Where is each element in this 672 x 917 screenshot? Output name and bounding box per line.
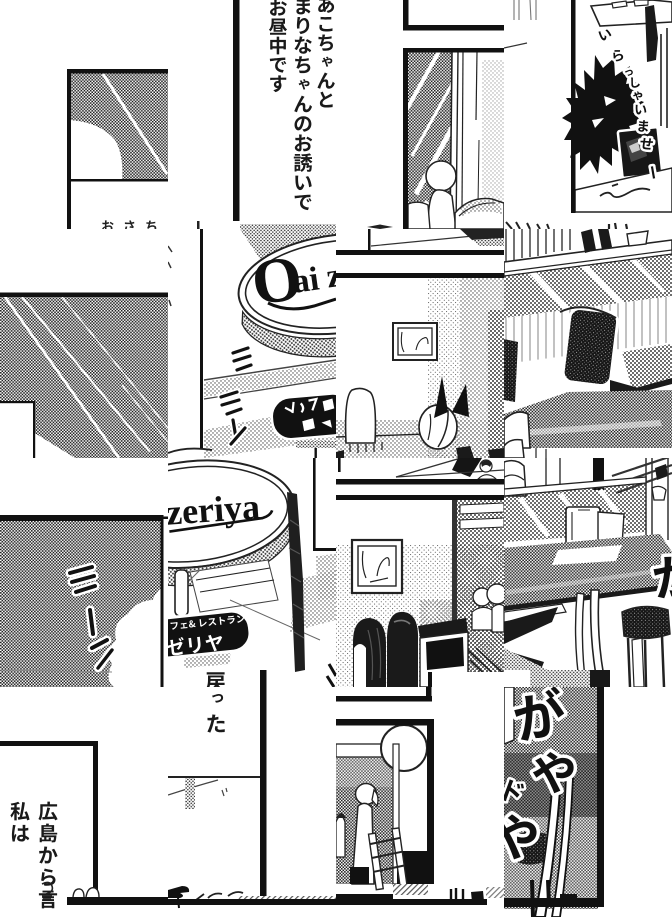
svg-text:ai: ai bbox=[290, 261, 321, 301]
